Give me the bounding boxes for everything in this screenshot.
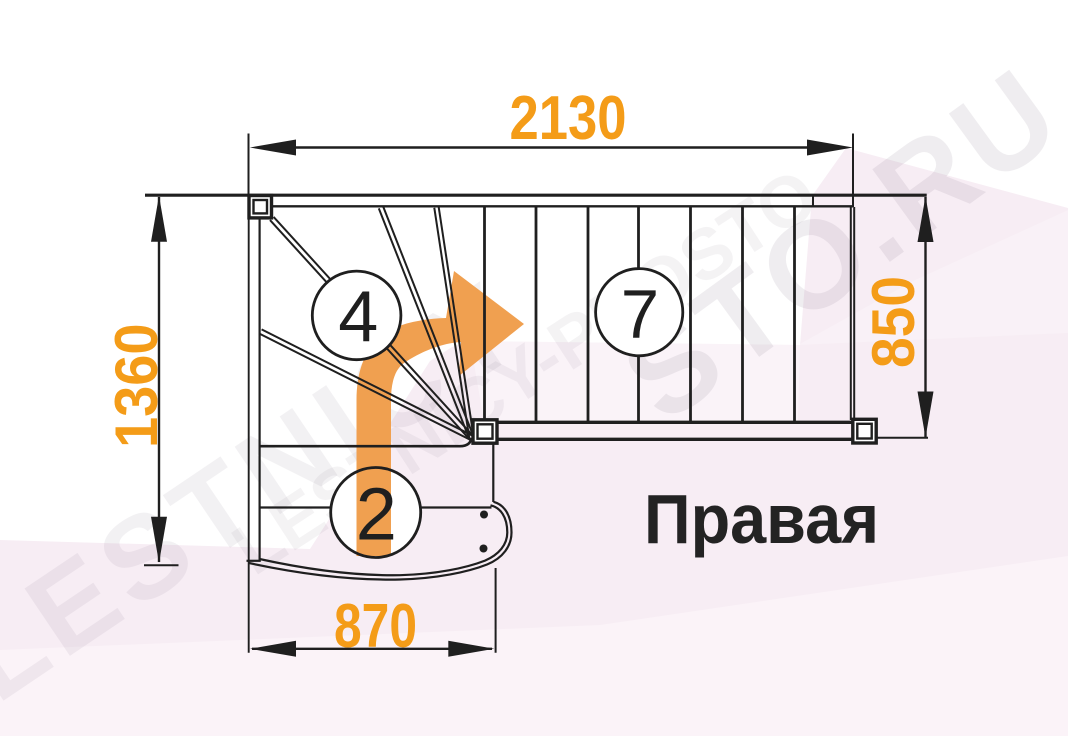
svg-text:2: 2 (356, 473, 397, 556)
svg-text:7: 7 (621, 275, 659, 352)
svg-text:1360: 1360 (103, 324, 170, 449)
svg-text:2130: 2130 (510, 84, 627, 153)
svg-text:870: 870 (334, 592, 417, 661)
svg-text:850: 850 (860, 276, 927, 368)
svg-text:Правая: Правая (644, 480, 879, 558)
svg-text:4: 4 (338, 278, 378, 358)
